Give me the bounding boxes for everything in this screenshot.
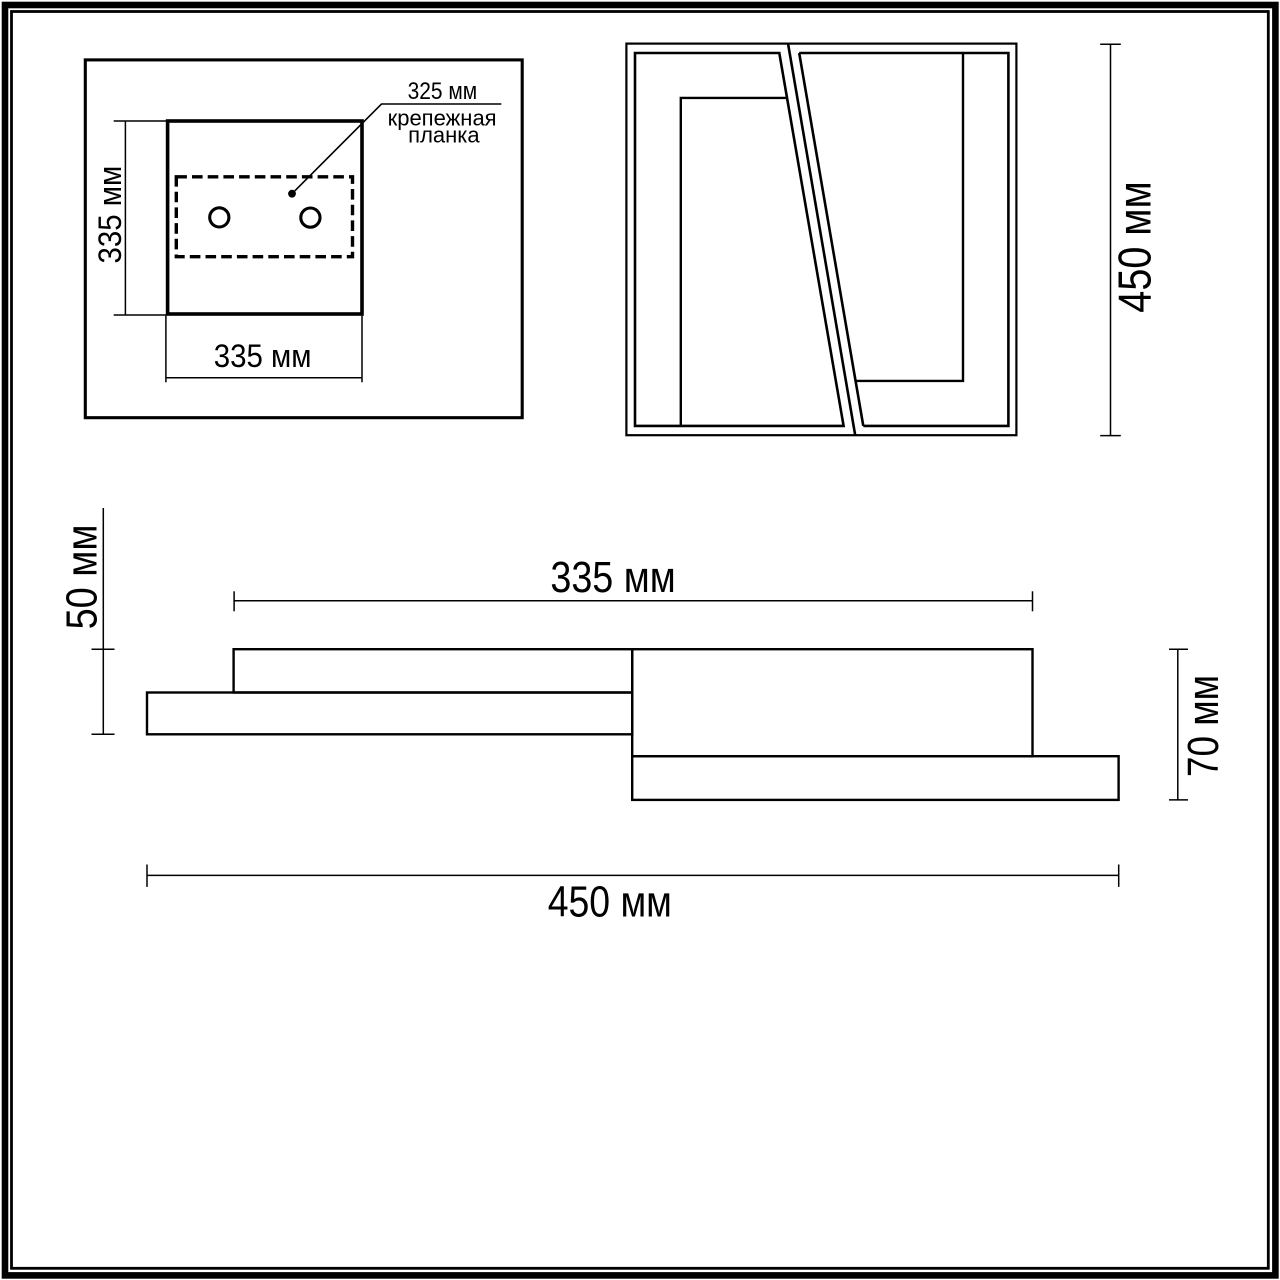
svg-text:335 мм: 335 мм — [550, 553, 675, 602]
svg-text:325 мм: 325 мм — [408, 78, 478, 105]
svg-text:50 мм: 50 мм — [57, 525, 106, 630]
svg-text:335 мм: 335 мм — [214, 338, 312, 374]
svg-text:70 мм: 70 мм — [1179, 675, 1228, 777]
svg-text:450 мм: 450 мм — [548, 878, 672, 927]
svg-text:450 мм: 450 мм — [1109, 181, 1161, 312]
svg-text:планка: планка — [408, 123, 480, 148]
svg-text:335 мм: 335 мм — [92, 166, 128, 264]
